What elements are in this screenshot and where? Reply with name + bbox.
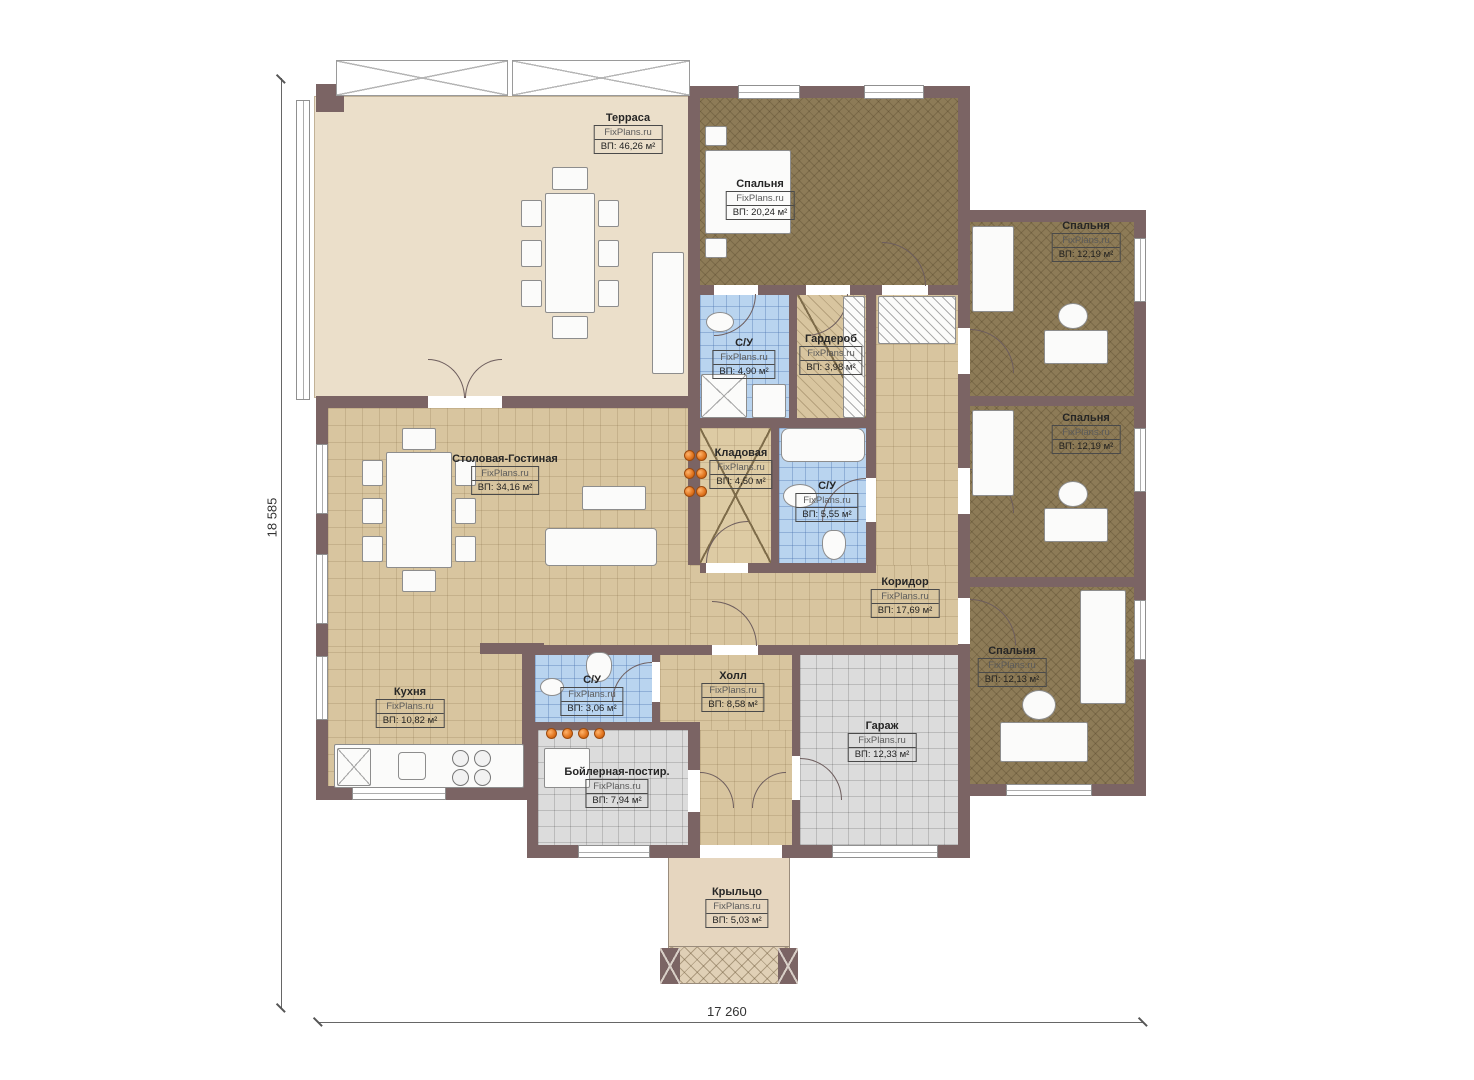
room-name: Гардероб (805, 333, 857, 345)
room-label-kitchen: Кухня FixPlans.ruВП: 10,82 м² (376, 686, 445, 728)
watermark: FixPlans.ru (710, 461, 771, 475)
watermark: FixPlans.ru (796, 494, 857, 508)
room-label-bedroom-1: Спальня FixPlans.ruВП: 12,19 м² (1052, 220, 1121, 262)
room-name: Бойлерная-постир. (564, 766, 669, 778)
watermark: FixPlans.ru (849, 734, 916, 748)
room-name: Терраса (606, 112, 650, 124)
terrace-counter (652, 252, 684, 374)
room-name: Спальня (1062, 412, 1110, 424)
room-area: ВП: 20,24 м² (727, 206, 794, 219)
room-area: ВП: 4,50 м² (710, 475, 771, 488)
watermark: FixPlans.ru (586, 780, 647, 794)
room-area: ВП: 5,55 м² (796, 508, 857, 521)
watermark: FixPlans.ru (377, 700, 444, 714)
living-window-2 (316, 554, 328, 624)
dimension-line-vertical (281, 78, 282, 1008)
boiler-dot (546, 728, 557, 739)
wall-su1-wardrobe (789, 293, 797, 423)
room-name: Спальня (1062, 220, 1110, 232)
bedroom1-bed (972, 226, 1014, 312)
room-label-porch: Крыльцо FixPlans.ruВП: 5,03 м² (705, 886, 768, 928)
su3-door-opening (652, 662, 660, 702)
bedroom2-chair (1058, 481, 1088, 507)
room-label-bedroom-3: Спальня FixPlans.ruВП: 12,13 м² (978, 645, 1047, 687)
bedroom3-door-opening (958, 598, 970, 644)
room-area: ВП: 3,06 м² (561, 702, 622, 715)
master-nightstand (705, 238, 727, 258)
wall-master-top (688, 86, 970, 98)
watermark: FixPlans.ru (872, 590, 939, 604)
storage-door-opening (706, 563, 748, 573)
living-chair (362, 498, 383, 524)
stove-burner (474, 769, 491, 786)
room-label-boiler: Бойлерная-постир. FixPlans.ruВП: 7,94 м² (564, 766, 669, 808)
terrace-chair (521, 200, 542, 227)
bedroom2-door-opening (958, 468, 970, 514)
room-name: Спальня (736, 178, 784, 190)
fireplace-dot (684, 468, 695, 479)
garage-gate (832, 845, 938, 858)
terrace-glazing-top-left (336, 60, 508, 96)
room-area: ВП: 8,58 м² (702, 698, 763, 711)
bedroom2-desk (1044, 508, 1108, 542)
terrace-chair (521, 240, 542, 267)
kitchen-window-bottom (352, 786, 446, 800)
fireplace-dot (696, 450, 707, 461)
garage-door-opening (792, 756, 800, 800)
wall-hall-garage (792, 655, 800, 845)
room-label-bedroom-2: Спальня FixPlans.ruВП: 12,19 м² (1052, 412, 1121, 454)
stove-burner (474, 750, 491, 767)
room-label-su-1: С/У FixPlans.ruВП: 4,90 м² (712, 337, 775, 379)
wall-terrace-bottom-b (502, 396, 700, 408)
room-name: С/У (583, 674, 601, 686)
stove-burner (452, 769, 469, 786)
terrace-table (545, 193, 595, 313)
sofa (545, 528, 657, 566)
kitchen-dishwasher (337, 748, 371, 786)
watermark: FixPlans.ru (713, 351, 774, 365)
watermark: FixPlans.ru (702, 684, 763, 698)
kitchen-sink (398, 752, 426, 780)
room-area: ВП: 34,16 м² (472, 481, 539, 494)
floor-plan: Терраса FixPlans.ruВП: 46,26 м² Спальня … (0, 0, 1474, 1080)
wall-wardrobe-corridor (866, 293, 876, 565)
master-window-1 (738, 85, 800, 99)
bedroom2-window (1134, 428, 1146, 492)
watermark: FixPlans.ru (979, 659, 1046, 673)
wall-bath-mid (700, 418, 868, 428)
terrace-chair (552, 167, 588, 190)
room-area: ВП: 46,26 м² (595, 140, 662, 153)
room-name: Столовая-Гостиная (452, 453, 558, 465)
bedroom3-chair (1022, 690, 1056, 720)
boiler-door-opening (688, 770, 700, 812)
room-label-su-2: С/У FixPlans.ruВП: 5,55 м² (795, 480, 858, 522)
wall-terrace-bottom-a (316, 396, 428, 408)
room-name: Кухня (394, 686, 426, 698)
hall-door-opening (712, 645, 758, 655)
wall-center-top (688, 86, 700, 408)
room-name: Кладовая (715, 447, 768, 459)
porch-post-left (660, 948, 680, 984)
watermark: FixPlans.ru (595, 126, 662, 140)
room-name: Коридор (881, 576, 928, 588)
su2-door-opening (866, 478, 876, 522)
su2-toilet (822, 530, 846, 560)
bedroom3-bed (1080, 590, 1126, 704)
room-label-living: Столовая-Гостиная FixPlans.ruВП: 34,16 м… (452, 453, 558, 495)
su1-sink (706, 312, 734, 332)
room-area: ВП: 12,19 м² (1053, 248, 1120, 261)
bedroom1-door-opening (958, 328, 970, 374)
room-name: С/У (818, 480, 836, 492)
room-label-garage: Гараж FixPlans.ruВП: 12,33 м² (848, 720, 917, 762)
wall-bedroom12-divider (968, 396, 1134, 406)
room-label-hall: Холл FixPlans.ruВП: 8,58 м² (701, 670, 764, 712)
fireplace-dot (684, 450, 695, 461)
room-label-bedroom-master: Спальня FixPlans.ruВП: 20,24 м² (726, 178, 795, 220)
master-nightstand (705, 126, 727, 146)
corridor-closet (878, 296, 956, 344)
master-door-opening (882, 285, 928, 295)
bedroom1-window (1134, 238, 1146, 302)
room-area: ВП: 17,69 м² (872, 604, 939, 617)
terrace-chair (521, 280, 542, 307)
room-label-su-3: С/У FixPlans.ruВП: 3,06 м² (560, 674, 623, 716)
room-area: ВП: 12,13 м² (979, 673, 1046, 686)
su2-bathtub (781, 428, 865, 462)
master-window-2 (864, 85, 924, 99)
su1-shower (701, 374, 747, 418)
boiler-dot (578, 728, 589, 739)
dimension-line-horizontal (318, 1022, 1143, 1023)
room-area: ВП: 5,03 м² (706, 914, 767, 927)
room-label-terrace: Терраса FixPlans.ruВП: 46,26 м² (594, 112, 663, 154)
su1-washer (752, 384, 786, 418)
watermark: FixPlans.ru (1053, 426, 1120, 440)
living-table (386, 452, 452, 568)
porch-post-right (778, 948, 798, 984)
porch-door-opening (700, 845, 782, 858)
wall-bedroom23-divider (958, 577, 1146, 587)
fireplace-dot (684, 486, 695, 497)
watermark: FixPlans.ru (800, 347, 861, 361)
room-area: ВП: 12,33 м² (849, 748, 916, 761)
room-name: Спальня (988, 645, 1036, 657)
terrace-chair (552, 316, 588, 339)
room-name: Гараж (866, 720, 899, 732)
watermark: FixPlans.ru (561, 688, 622, 702)
bedroom3-window-right (1134, 600, 1146, 660)
living-chair (455, 498, 476, 524)
boiler-dot (562, 728, 573, 739)
kitchen-window-left (316, 656, 328, 720)
bedroom2-bed (972, 410, 1014, 496)
living-window-1 (316, 444, 328, 514)
boiler-dot (594, 728, 605, 739)
terrace-chair (598, 200, 619, 227)
living-chair (402, 570, 436, 592)
living-chair (362, 460, 383, 486)
dimension-horizontal-label: 17 260 (707, 1004, 747, 1019)
living-chair (402, 428, 436, 450)
room-name: Холл (719, 670, 747, 682)
room-area: ВП: 7,94 м² (586, 794, 647, 807)
living-chair (362, 536, 383, 562)
terrace-chair (598, 280, 619, 307)
bedroom1-chair (1058, 303, 1088, 329)
wall-su3-bottom (535, 722, 700, 730)
fireplace-dot (696, 468, 707, 479)
watermark: FixPlans.ru (706, 900, 767, 914)
watermark: FixPlans.ru (727, 192, 794, 206)
room-area: ВП: 10,82 м² (377, 714, 444, 727)
fireplace-dot (696, 486, 707, 497)
bedroom1-desk (1044, 330, 1108, 364)
living-chair (455, 536, 476, 562)
room-area: ВП: 3,98 м² (800, 361, 861, 374)
terrace-glazing-left (296, 100, 310, 400)
porch-steps (668, 946, 790, 984)
coffee-table (582, 486, 646, 510)
bedroom3-window-bottom (1006, 784, 1092, 796)
room-label-corridor: Коридор FixPlans.ruВП: 17,69 м² (871, 576, 940, 618)
bedroom3-desk (1000, 722, 1088, 762)
terrace-chair (598, 240, 619, 267)
stove-burner (452, 750, 469, 767)
room-name: С/У (735, 337, 753, 349)
watermark: FixPlans.ru (472, 467, 539, 481)
room-label-storage: Кладовая FixPlans.ruВП: 4,50 м² (709, 447, 772, 489)
room-area: ВП: 12,19 м² (1053, 440, 1120, 453)
room-area: ВП: 4,90 м² (713, 365, 774, 378)
room-name: Крыльцо (712, 886, 762, 898)
watermark: FixPlans.ru (1053, 234, 1120, 248)
boiler-window (578, 845, 650, 858)
dimension-vertical-label: 18 585 (264, 498, 279, 538)
room-label-wardrobe: Гардероб FixPlans.ruВП: 3,98 м² (799, 333, 862, 375)
terrace-glazing-top-right (512, 60, 690, 96)
